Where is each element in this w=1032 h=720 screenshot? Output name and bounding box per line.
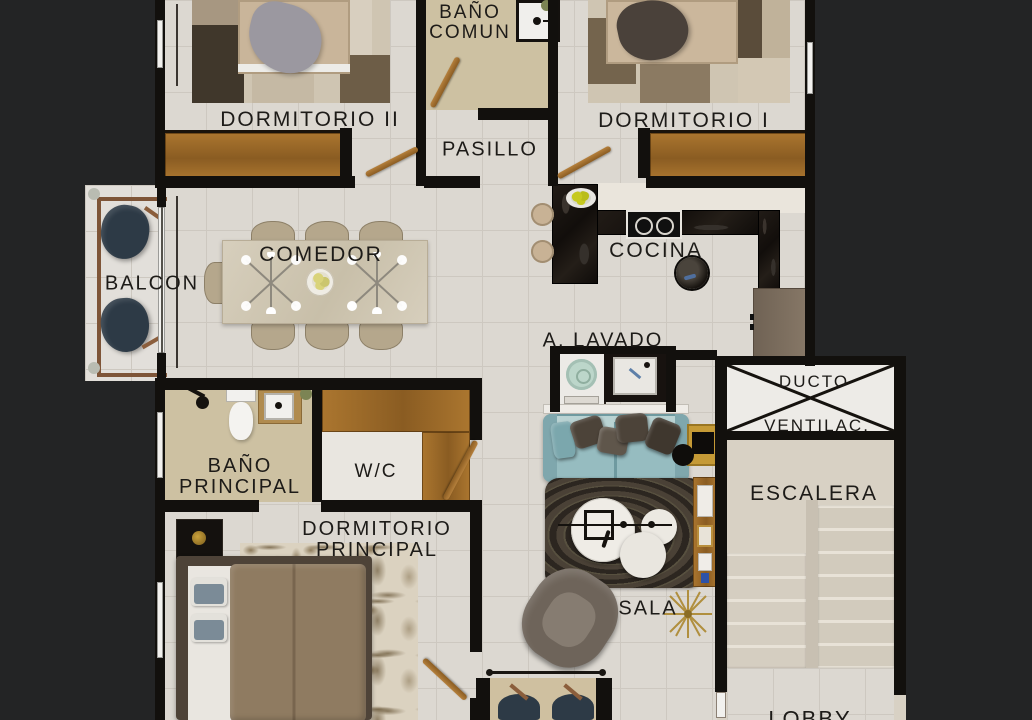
window <box>807 42 813 94</box>
centerpiece-flowers <box>312 272 330 290</box>
room-label-balcon: BALCON <box>105 274 199 295</box>
wardrobe-dormitorio-i <box>650 130 810 179</box>
bedside-art-table <box>177 520 222 558</box>
wall <box>638 128 650 178</box>
room-label-escalera: ESCALERA <box>750 483 878 505</box>
table-decor-dot <box>648 521 655 528</box>
bar-stool <box>531 203 554 226</box>
laundry-sink <box>604 352 666 402</box>
room-label-comedor: COMEDOR <box>259 244 383 266</box>
room-label-ventilac: VENTILAC. <box>764 417 870 435</box>
room-label-pasillo: PASILLO <box>442 140 538 161</box>
toilet-bowl <box>229 402 253 440</box>
coffee-table-medium <box>620 532 666 578</box>
window <box>157 582 163 658</box>
refrigerator <box>753 288 808 362</box>
label-line: DORMITORIO <box>302 519 452 540</box>
wall <box>548 0 558 186</box>
room-label-sala: SALA <box>618 599 677 620</box>
room-label-dormitorio-ii: DORMITORIO II <box>220 109 400 131</box>
wall <box>478 108 558 120</box>
room-label-dormitorio-principal: DORMITORIO PRINCIPAL <box>302 519 452 561</box>
table-decor-dot <box>620 521 627 528</box>
stove <box>626 210 682 239</box>
wall <box>894 356 906 695</box>
tv-console <box>693 477 717 587</box>
wall <box>416 0 426 186</box>
room-label-bano-comun: BAÑO COMUN <box>429 3 511 43</box>
wc-closet-top <box>322 388 470 432</box>
balcony-plant <box>88 188 100 200</box>
wall <box>715 356 727 692</box>
wall <box>157 353 166 380</box>
railing-end <box>599 669 606 676</box>
side-table-decor <box>672 444 694 466</box>
curtain-line <box>176 4 178 86</box>
window <box>157 20 163 68</box>
wall <box>476 678 490 720</box>
wall <box>550 346 560 412</box>
wall <box>312 390 322 502</box>
label-line: BAÑO <box>429 3 511 23</box>
wall <box>155 378 482 390</box>
wall <box>340 128 352 178</box>
bed-master <box>176 556 372 720</box>
shower-head-icon <box>196 396 209 409</box>
wall <box>676 350 717 360</box>
railing-end <box>486 669 493 676</box>
wardrobe-dormitorio-ii <box>165 130 342 179</box>
lobby-door <box>716 692 726 718</box>
wall <box>157 185 166 207</box>
room-label-dormitorio-i: DORMITORIO I <box>598 110 770 132</box>
wall <box>321 500 482 512</box>
wall <box>666 346 676 412</box>
wall <box>155 176 355 188</box>
table-decor-square <box>584 510 614 540</box>
vanity-sink <box>264 393 294 420</box>
bar-stool <box>531 240 554 263</box>
wall <box>596 678 612 720</box>
sofa-pillow <box>615 412 650 443</box>
room-label-lobby: LOBBY <box>768 707 851 720</box>
floor-plan: DORMITORIO II BAÑO COMUN DORMITORIO I PA… <box>0 0 1032 720</box>
kitchen-counter-right <box>758 210 780 292</box>
stair-flight-left <box>727 553 806 668</box>
label-line: PRINCIPAL <box>179 477 301 498</box>
bottom-balcony-chair <box>498 694 540 720</box>
bottom-balcony-chair <box>552 694 594 720</box>
stair-flight-right <box>818 505 894 668</box>
stair-divider <box>806 500 818 668</box>
room-label-wc: W/C <box>355 462 398 482</box>
washing-machine <box>558 352 606 410</box>
room-label-cocina: COCINA <box>609 240 703 262</box>
room-label-a-lavado: A. LAVADO <box>543 331 664 352</box>
room-label-bano-principal: BAÑO PRINCIPAL <box>179 456 301 498</box>
wall <box>646 176 815 188</box>
label-line: PRINCIPAL <box>302 540 452 561</box>
label-line: COMUN <box>429 23 511 43</box>
bottom-balcony-railing <box>490 671 602 674</box>
label-line: BAÑO <box>179 456 301 477</box>
wall <box>155 500 259 512</box>
toilet <box>226 388 256 402</box>
wall <box>715 356 905 365</box>
room-label-ducto: DUCTO <box>779 373 849 391</box>
balcony-plant <box>88 362 100 374</box>
lemons <box>571 191 591 205</box>
window <box>157 412 163 478</box>
wall <box>470 500 482 652</box>
wall <box>424 176 480 188</box>
